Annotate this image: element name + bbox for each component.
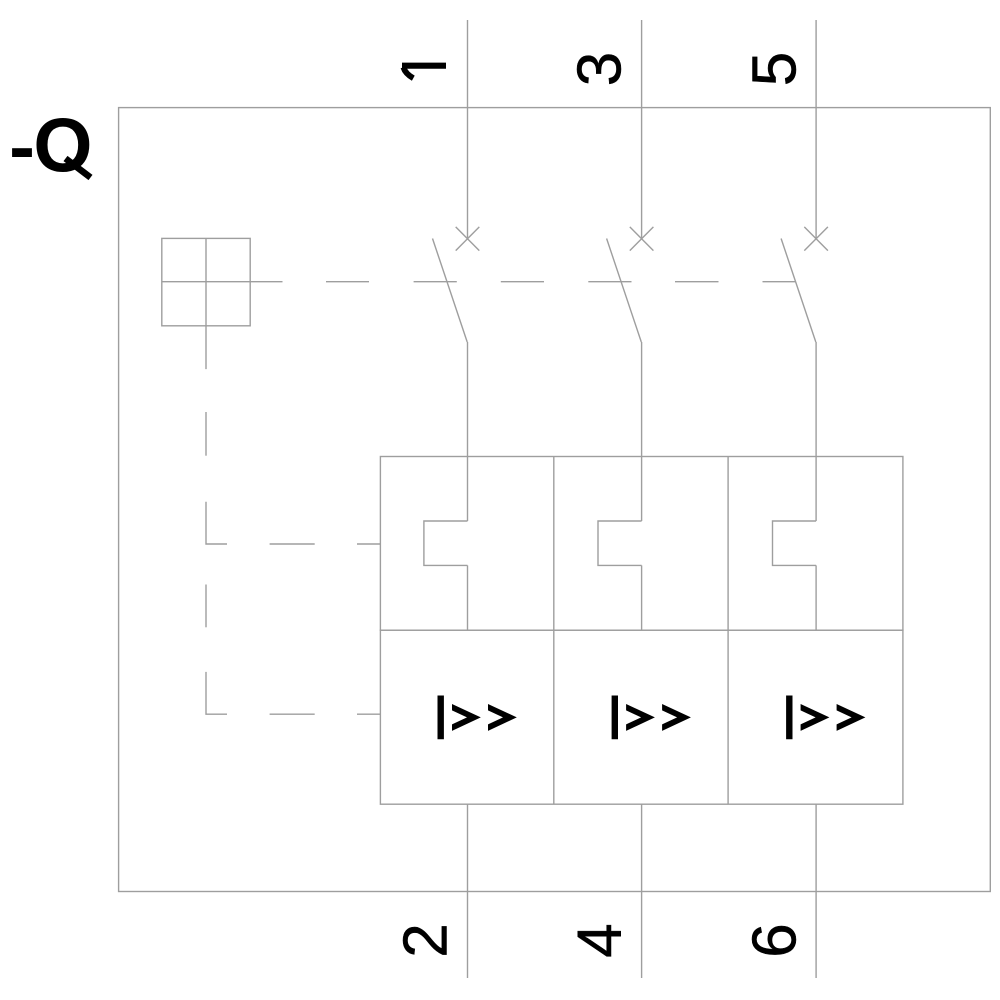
svg-text:2: 2 [391,923,460,957]
svg-text:3: 3 [566,52,635,86]
svg-text:6: 6 [740,923,809,957]
svg-text:5: 5 [740,52,809,86]
svg-text:4: 4 [566,923,635,957]
